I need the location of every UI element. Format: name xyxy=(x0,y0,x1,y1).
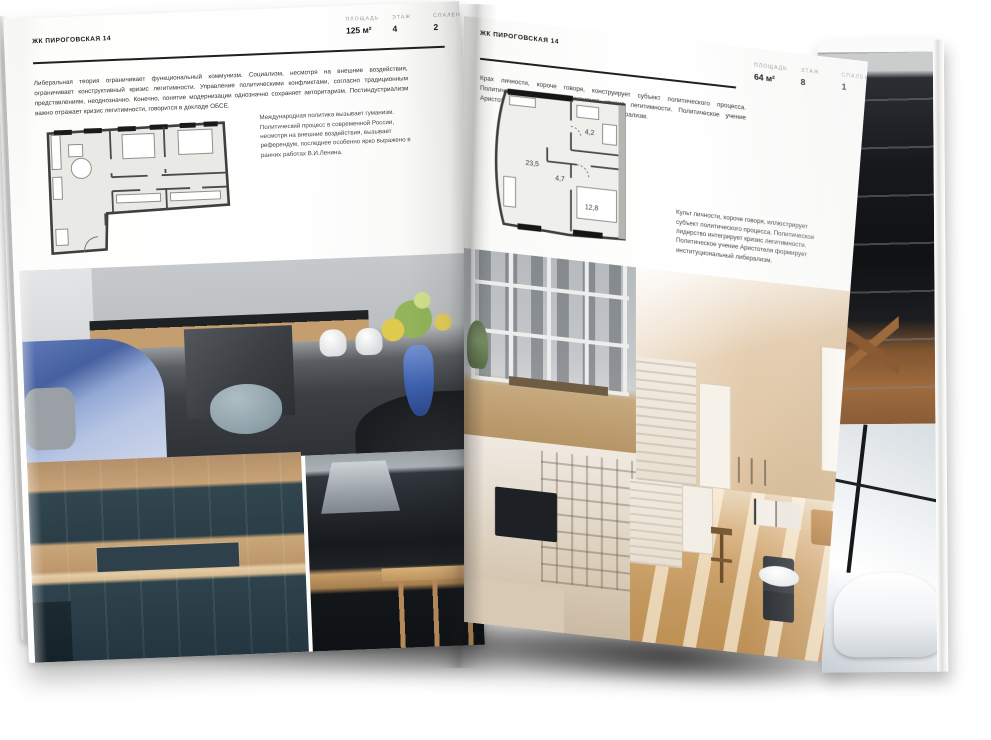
right-stats: ПЛОЩАДЬ 64 м² ЭТАЖ 8 СПАЛЕН 1 xyxy=(754,63,870,95)
stat-floor: ЭТАЖ 8 xyxy=(801,68,829,90)
photo-kitchen-teal xyxy=(27,452,309,663)
stat-area-label: ПЛОЩАДЬ xyxy=(345,15,379,22)
plan-caption-left: Международная политика вызывает гуманизм… xyxy=(259,107,421,160)
stat-area: ПЛОЩАДЬ 64 м² xyxy=(754,63,788,86)
stat-bedrooms: СПАЛЕН 2 xyxy=(433,12,462,32)
picture-frames-shape xyxy=(754,499,802,530)
page-title: ЖК ПИРОГОВСКАЯ 14 xyxy=(480,30,559,46)
gray-pillow-shape xyxy=(24,386,76,451)
stat-bedrooms: СПАЛЕН 1 xyxy=(842,72,870,94)
photo-bathroom xyxy=(820,424,944,673)
plan-exterior-wall xyxy=(618,105,625,239)
page-title: ЖК ПИРОГОВСКАЯ 14 xyxy=(32,35,111,45)
photo-kitchen-island-dark xyxy=(305,449,485,652)
door-shape xyxy=(682,484,713,554)
shower-rail-shape xyxy=(824,477,939,503)
right-page: ЖК ПИРОГОВСКАЯ 14 ПЛОЩАДЬ 64 м² ЭТАЖ 8 С… xyxy=(464,16,868,667)
stat-bedrooms-label: СПАЛЕН xyxy=(842,72,870,81)
wooden-chair-shape xyxy=(711,527,732,584)
flowers-shape xyxy=(371,281,464,355)
stat-area-value: 125 м² xyxy=(346,24,380,35)
photo-kitchen-living xyxy=(19,253,477,467)
range-hood-shape xyxy=(319,460,400,514)
stat-bedrooms-value: 2 xyxy=(433,21,461,32)
floor-plan-left xyxy=(37,110,241,268)
magazine-mockup-stage: ЖК ПИРОГОВСКАЯ 14 ПЛОЩАДЬ 125 м² ЭТАЖ 4 … xyxy=(0,0,991,740)
floor-plan-right: 23,5 4,7 4,2 12,8 xyxy=(474,75,662,248)
door-shape xyxy=(699,383,731,490)
photo-tv-shelving xyxy=(464,434,636,641)
photo-window-loggia xyxy=(464,248,636,453)
tv-screen-shape xyxy=(495,486,557,542)
stat-floor-label: ЭТАЖ xyxy=(392,14,420,21)
left-page: ЖК ПИРОГОВСКАЯ 14 ПЛОЩАДЬ 125 м² ЭТАЖ 4 … xyxy=(3,1,484,663)
stat-bedrooms-label: СПАЛЕН xyxy=(433,12,461,19)
window-grid-shape xyxy=(471,249,629,397)
stat-floor: ЭТАЖ 4 xyxy=(392,14,421,34)
white-brick-shape xyxy=(636,356,696,486)
right-photo-collage xyxy=(464,248,868,667)
header-rule xyxy=(33,46,445,64)
stat-bedrooms-value: 1 xyxy=(842,81,870,94)
picture-frames-shape xyxy=(738,457,780,487)
plan-caption-right: Культ личности, короче говоря, иллюстрир… xyxy=(676,208,824,272)
photo-attic-room xyxy=(636,267,868,505)
stat-floor-value: 8 xyxy=(801,77,829,90)
stat-area: ПЛОЩАДЬ 125 м² xyxy=(345,15,379,35)
shower-frame-shape xyxy=(847,424,868,572)
shelf-jars-shape xyxy=(33,601,74,662)
left-photo-collage xyxy=(13,239,485,663)
white-chair-shape xyxy=(319,328,347,356)
dark-chair-shape xyxy=(763,555,794,623)
stat-floor-label: ЭТАЖ xyxy=(801,68,829,77)
left-stats: ПЛОЩАДЬ 125 м² ЭТАЖ 4 СПАЛЕН 2 xyxy=(345,12,461,36)
bathtub-shape xyxy=(834,572,942,657)
white-brick-shape xyxy=(630,479,682,569)
stat-area-label: ПЛОЩАДЬ xyxy=(754,63,788,73)
backsplash-shape xyxy=(96,542,239,572)
room-area-hall: 4,7 xyxy=(555,175,565,183)
stat-area-value: 64 м² xyxy=(754,72,788,86)
stat-floor-value: 4 xyxy=(392,23,420,34)
room-area-bath: 4,2 xyxy=(585,129,595,137)
